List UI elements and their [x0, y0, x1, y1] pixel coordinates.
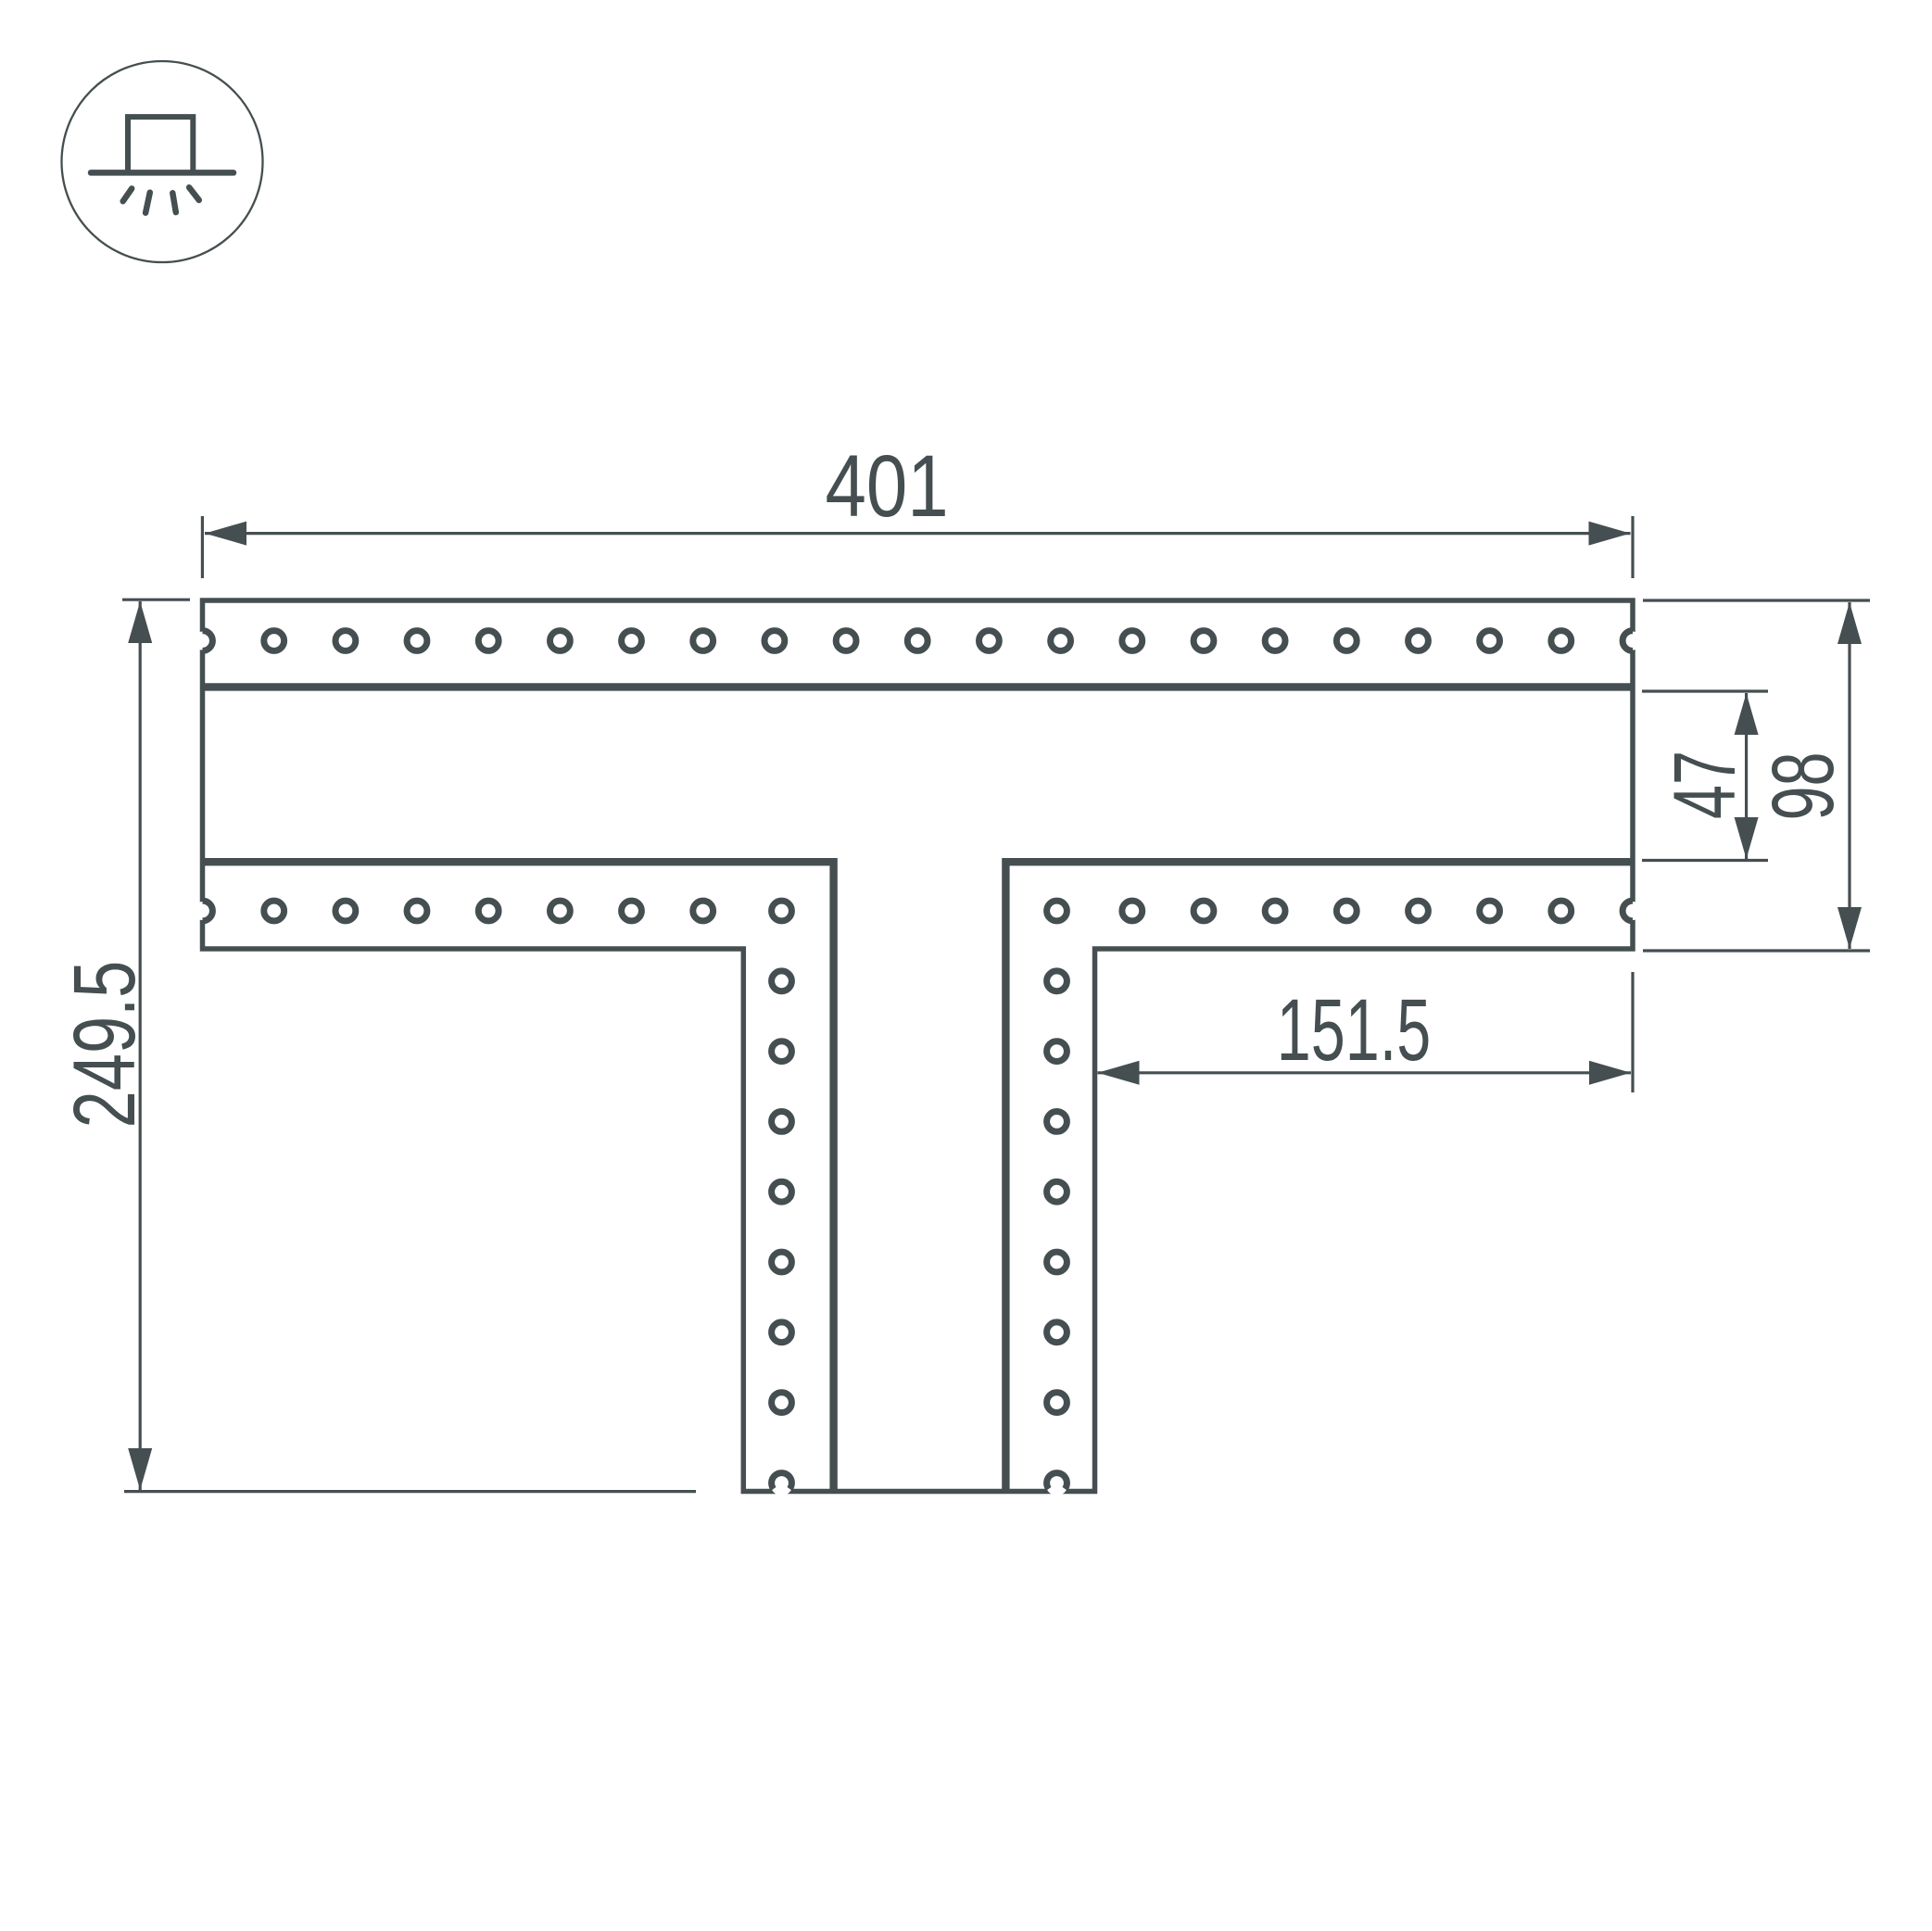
- svg-text:47: 47: [1656, 751, 1753, 819]
- svg-text:401: 401: [825, 436, 948, 535]
- svg-text:249.5: 249.5: [55, 961, 153, 1129]
- svg-text:98: 98: [1754, 752, 1851, 821]
- svg-text:151.5: 151.5: [1277, 981, 1431, 1079]
